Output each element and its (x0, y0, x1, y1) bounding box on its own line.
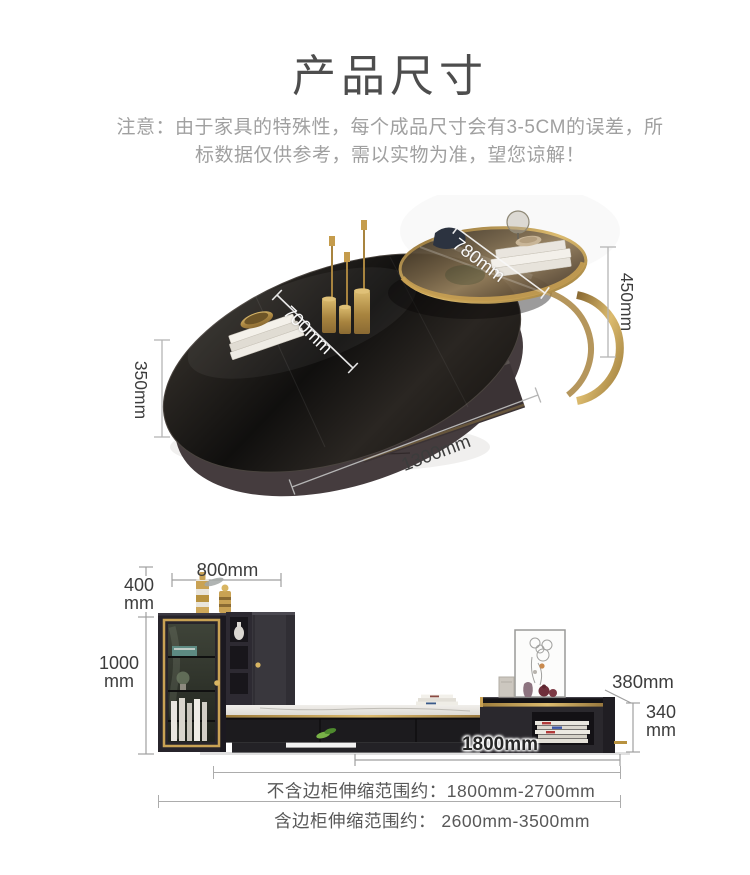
dimension-tick (620, 795, 621, 808)
door-knob (214, 680, 220, 686)
dimension-tick (158, 795, 159, 808)
dim-value: 340 (637, 703, 685, 721)
page-title: 产品尺寸 (30, 40, 750, 104)
range-line-excluding (213, 772, 620, 773)
range-line-including (158, 801, 620, 802)
art-frame (515, 630, 565, 697)
dim-value: 1000 (93, 654, 145, 672)
side-cabinet-decor (499, 630, 565, 697)
product-dimensions-page: 产品尺寸 注意：由于家具的特殊性，每个成品尺寸会有3-5CM的误差，所 标数据仅… (0, 0, 750, 875)
dim-unit: mm (117, 594, 161, 612)
dim-label-side-height: 340 mm (637, 703, 685, 739)
door-cabinet (252, 612, 295, 708)
dim-label-upper-height: 400 mm (117, 576, 161, 612)
dim-unit: mm (637, 721, 685, 739)
notice-line-1: 注意：由于家具的特殊性，每个成品尺寸会有3-5CM的误差，所 (30, 112, 750, 139)
notice-line-2: 标数据仅供参考，需以实物为准，望您谅解！ (30, 140, 750, 167)
range-text-including: 含边柜伸缩范围约： 2600mm-3500mm (72, 808, 750, 833)
tv-stand-furniture (158, 572, 630, 755)
dim-label-side-table-height: 450mm (617, 252, 637, 352)
door-knob (255, 662, 260, 667)
range-text-excluding: 不含边柜伸缩范围约：1800mm-2700mm (71, 778, 750, 803)
dim-label-table-height: 350mm (131, 340, 151, 440)
dim-label-cabinet-height: 1000 mm (93, 654, 145, 690)
tv-stand-figure (80, 545, 700, 780)
open-shelf-unit (226, 612, 252, 708)
dim-label-base-length: 1800mm (452, 735, 548, 755)
dim-label-side-depth: 380mm (597, 672, 689, 692)
dim-value: 400 (117, 576, 161, 594)
gold-leg (577, 295, 620, 401)
dim-unit: mm (93, 672, 145, 690)
coffee-table-figure (80, 195, 680, 515)
glass-display-cabinet (158, 613, 226, 752)
dim-label-top-cabinet-width: 800mm (180, 560, 275, 580)
